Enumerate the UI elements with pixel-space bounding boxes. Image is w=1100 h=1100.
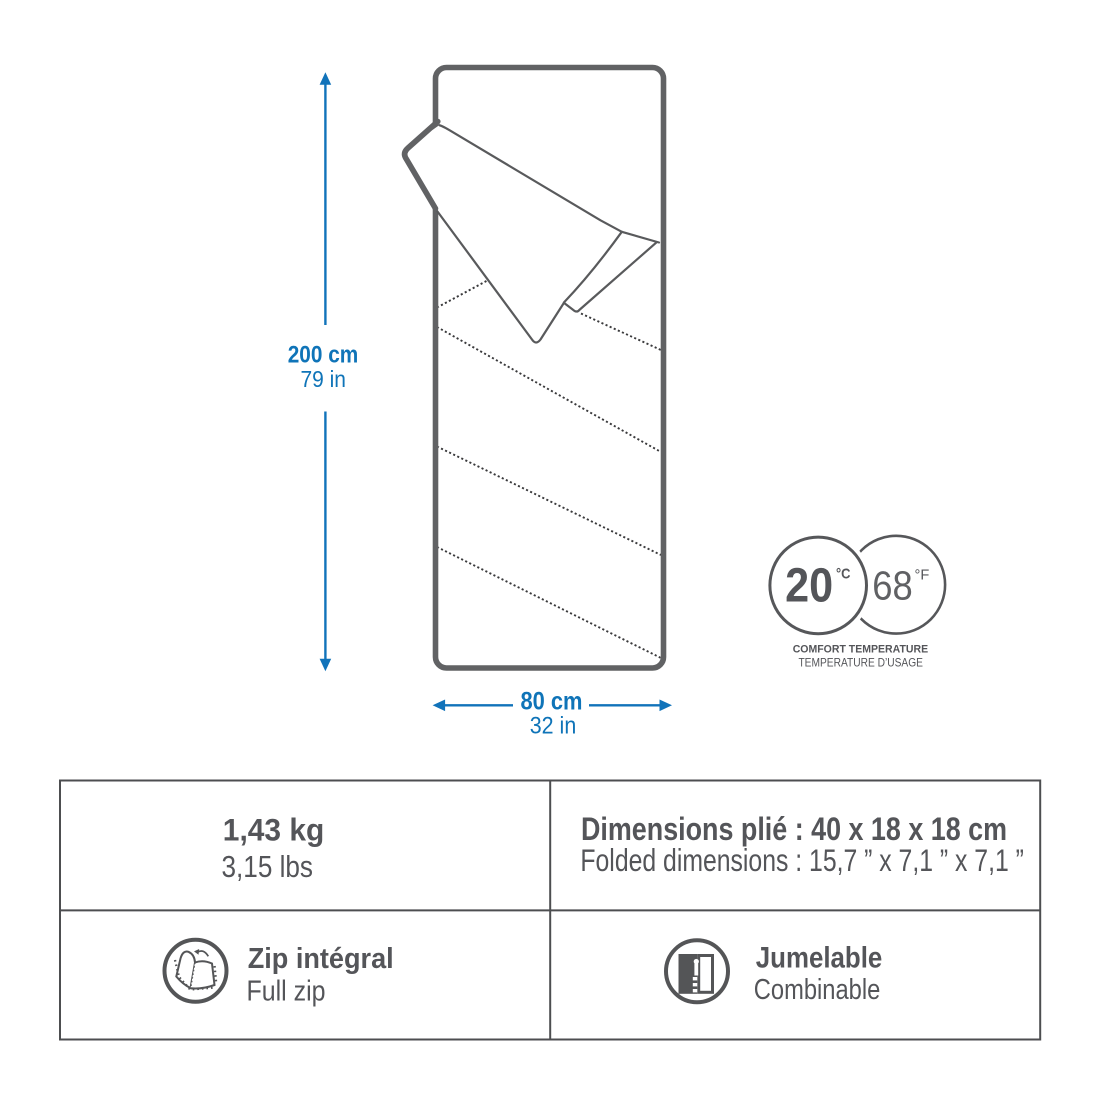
svg-text:79 in: 79 in <box>300 366 346 392</box>
svg-text:3,15 lbs: 3,15 lbs <box>222 849 314 884</box>
svg-text:°F: °F <box>915 567 930 584</box>
svg-text:1,43 kg: 1,43 kg <box>223 812 324 848</box>
svg-text:Folded dimensions : 15,7 ” x 7: Folded dimensions : 15,7 ” x 7,1 ” x 7,1… <box>580 842 1024 878</box>
svg-text:80 cm: 80 cm <box>521 688 583 716</box>
svg-text:32 in: 32 in <box>530 713 577 740</box>
svg-text:Full zip: Full zip <box>247 976 326 1008</box>
svg-text:Zip intégral: Zip intégral <box>248 943 394 975</box>
svg-text:200 cm: 200 cm <box>288 342 359 369</box>
svg-text:TEMPERATURE D’USAGE: TEMPERATURE D’USAGE <box>798 656 923 670</box>
svg-text:Jumelable: Jumelable <box>756 942 883 975</box>
svg-text:°C: °C <box>836 566 851 583</box>
svg-text:COMFORT TEMPERATURE: COMFORT TEMPERATURE <box>793 644 929 656</box>
svg-text:20: 20 <box>785 558 833 612</box>
svg-text:Combinable: Combinable <box>754 974 881 1006</box>
svg-text:68: 68 <box>872 563 913 609</box>
